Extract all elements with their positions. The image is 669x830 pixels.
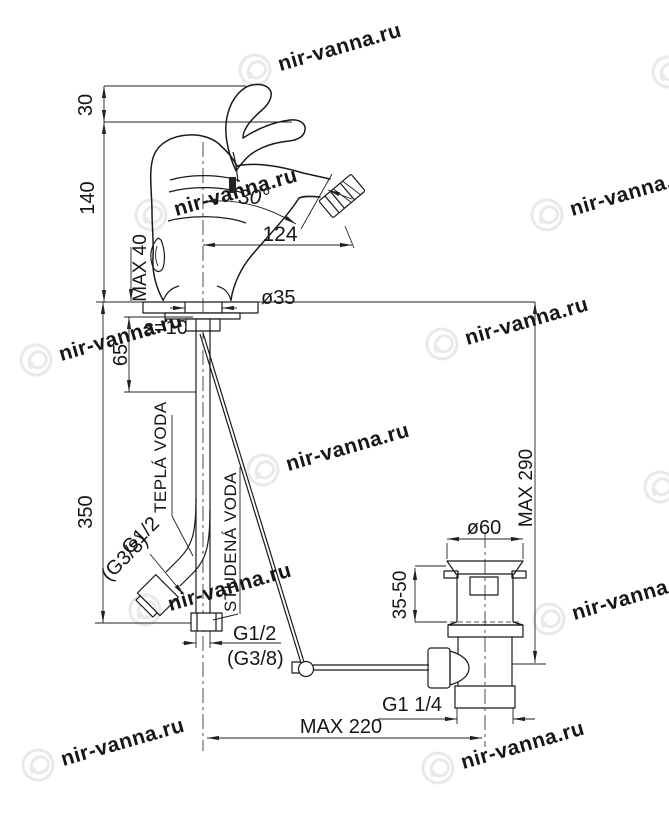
dim-clamping-range-label: 35-50 <box>390 571 411 620</box>
dim-max-height-label: MAX 290 <box>516 449 537 527</box>
dim-waste-flange-dia-label: ø60 <box>467 517 501 539</box>
watermark-text: nir-vanna.ru <box>569 568 669 625</box>
watermark: nir-vanna.ru <box>423 288 591 363</box>
bidet-mixer-dimension-drawing: nir-vanna.ru nir-vanna.ru nir-vanna.ru n… <box>0 0 669 830</box>
rod-nut-bulge <box>450 651 469 685</box>
watermark-text: nir-vanna.ru <box>462 293 591 350</box>
dim-plate-thickness-label: s=10 <box>144 317 188 339</box>
cold-thread-label: G1/2 <box>233 623 276 645</box>
watermark-text: nir-vanna.ru <box>58 714 187 771</box>
mounting-washer <box>165 313 240 319</box>
waste-overflow-window <box>470 577 498 595</box>
watermark-logo-icon <box>419 749 456 786</box>
dim-handle-rise-label: 30 <box>75 94 97 116</box>
dim-supply-length-label: 350 <box>75 495 97 528</box>
aerator <box>319 174 365 218</box>
watermark-logo-icon <box>17 341 54 378</box>
cold-water-label: STUDENÁ VODA <box>221 472 240 612</box>
watermark-logo-icon <box>244 451 281 488</box>
drain-assembly: ø60 35-50 G1 1/4 <box>378 517 535 724</box>
watermark-text: nir-vanna.ru <box>567 164 669 221</box>
watermark: nir-vanna.ru <box>244 414 412 489</box>
base-flare-left <box>163 286 179 301</box>
cold-thread-alt-label: (G3/8) <box>227 648 284 670</box>
lever-handle-outline <box>226 84 305 171</box>
watermark: nir-vanna.ru <box>17 304 185 379</box>
rod-ball-joint <box>299 662 314 677</box>
dim-max-rod-reach-label: MAX 220 <box>300 716 382 738</box>
deck-hatch-right <box>222 302 258 313</box>
base-flare-right <box>217 286 231 301</box>
mounting-nut <box>186 319 220 331</box>
hot-pipe-outer-edge <box>166 498 196 572</box>
max-height-dimension: MAX 290 <box>512 302 546 664</box>
watermark: nir-vanna.ru <box>19 709 187 784</box>
watermark: nir-vanna.ru <box>419 712 587 787</box>
watermark-logo-icon <box>19 746 56 783</box>
dim-mount-hole-dia-label: ø35 <box>261 287 295 309</box>
watermark-text: nir-vanna.ru <box>275 19 404 76</box>
knurled-rod-nut <box>428 648 450 688</box>
watermark-logo-icon <box>423 325 460 362</box>
dimension-chain-left: 30 140 350 MAX 40 <box>75 86 292 623</box>
watermark-logo-icon <box>530 600 567 637</box>
watermark-text: nir-vanna.ru <box>283 419 412 476</box>
dim-spout-reach-label: 124 <box>262 223 297 246</box>
dim-max-deck-thickness-label: MAX 40 <box>130 234 151 302</box>
watermark: nir-vanna.ru <box>528 159 669 234</box>
watermark: nir-vanna.ru <box>530 563 669 638</box>
dim-waste-thread-label: G1 1/4 <box>382 694 442 716</box>
watermark-partial <box>649 53 669 90</box>
watermark-logo-icon <box>528 196 565 233</box>
hot-water-label: TEPLÁ VODA <box>151 401 170 513</box>
watermark-logo-icon <box>641 468 669 505</box>
watermark-logo-icon <box>649 53 669 90</box>
watermark-text: nir-vanna.ru <box>458 717 587 774</box>
dim-spray-angle-label: 30° <box>238 186 270 209</box>
watermarks: nir-vanna.ru nir-vanna.ru nir-vanna.ru n… <box>17 14 669 787</box>
waste-mid-flange <box>448 625 523 637</box>
watermark-partial <box>641 468 669 505</box>
supply-pipes: G1/2 (G3/8) G1/2 (G3/8) TEPLÁ VODA STUDE… <box>97 319 284 670</box>
handle-pin <box>229 177 236 193</box>
technical-drawing-page: nir-vanna.ru nir-vanna.ru nir-vanna.ru n… <box>0 0 669 830</box>
watermark: nir-vanna.ru <box>236 14 404 89</box>
cold-pipe-nut <box>191 613 222 631</box>
dim-body-height-label: 140 <box>77 181 99 214</box>
watermark-logo-icon <box>236 51 273 88</box>
dim-shank-length-label: 65 <box>110 344 132 366</box>
body-side-tab-line <box>156 246 158 266</box>
spout-bottom-edge <box>231 196 320 300</box>
hot-label-leader <box>172 516 193 556</box>
